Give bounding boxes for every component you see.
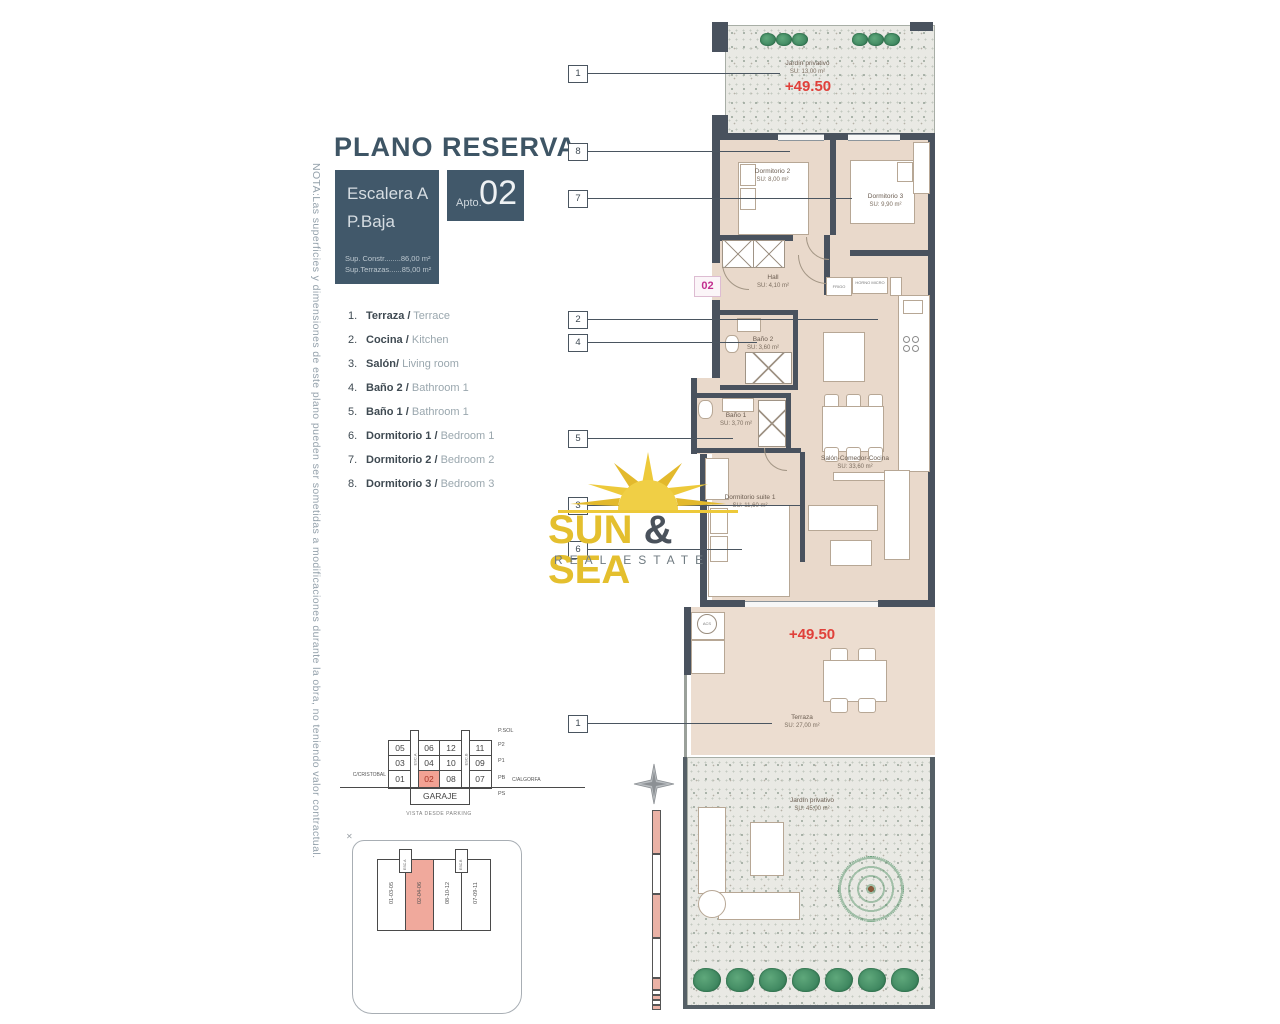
wall bbox=[683, 757, 687, 1009]
wall bbox=[712, 300, 720, 378]
bush bbox=[792, 968, 820, 992]
hob-burner bbox=[903, 336, 910, 343]
garden-table bbox=[750, 822, 784, 876]
bush bbox=[868, 33, 884, 46]
boundary bbox=[684, 675, 687, 757]
callout-leader-line bbox=[586, 73, 780, 74]
terrace-table bbox=[823, 660, 887, 702]
wall bbox=[700, 600, 745, 607]
legend-item: 2.Cocina / Kitchen bbox=[348, 334, 494, 358]
closet bbox=[753, 240, 785, 268]
hob-burner bbox=[912, 336, 919, 343]
kitchen-sink bbox=[903, 300, 923, 314]
apto-number: 02 bbox=[479, 174, 517, 213]
oven-micro: HORNO MICRO bbox=[852, 277, 888, 294]
window bbox=[848, 134, 900, 141]
wall bbox=[691, 378, 697, 454]
garden-sofa bbox=[718, 892, 800, 920]
floor-label-PS: PS bbox=[498, 791, 505, 797]
tv-unit bbox=[833, 472, 889, 481]
callout-leader-line bbox=[586, 723, 772, 724]
bath1-shower bbox=[758, 400, 786, 447]
hob-burner bbox=[912, 345, 919, 352]
scale-segment bbox=[652, 854, 661, 894]
scale-segment bbox=[652, 894, 661, 938]
scale-segment bbox=[652, 1005, 661, 1010]
chair bbox=[830, 698, 848, 713]
garden-sofa bbox=[698, 807, 726, 894]
callout-4: 4 bbox=[568, 334, 588, 352]
street-line bbox=[340, 787, 585, 788]
bush bbox=[858, 968, 886, 992]
escalera-label: Escalera A bbox=[347, 184, 439, 204]
bath1-sink bbox=[722, 398, 754, 412]
callout-leader-line bbox=[586, 438, 733, 439]
room-label-dorm3: Dormitorio 3 SU: 9,90 m² bbox=[848, 193, 923, 210]
wardrobe bbox=[913, 142, 930, 194]
bush bbox=[852, 33, 868, 46]
wall bbox=[800, 452, 805, 562]
pantry bbox=[890, 277, 902, 296]
graphic-scale-bar bbox=[652, 810, 661, 1010]
bush bbox=[776, 33, 792, 46]
bush bbox=[792, 33, 808, 46]
garage-caption: VISTA DESDE PARKING bbox=[388, 811, 490, 817]
scale-segment bbox=[652, 978, 661, 990]
legend-item: 4.Baño 2 / Bathroom 1 bbox=[348, 382, 494, 406]
legend-item: 5.Baño 1 / Bathroom 1 bbox=[348, 406, 494, 430]
plano-reserva-sheet: NOTA:Las superficies y dimensiones de es… bbox=[0, 0, 1280, 1024]
callout-3: 3 bbox=[568, 497, 588, 515]
window bbox=[778, 134, 824, 141]
wall bbox=[793, 310, 798, 390]
pillow bbox=[710, 508, 728, 534]
wall bbox=[910, 22, 933, 31]
bush bbox=[884, 33, 900, 46]
room-legend: 1.Terraza / Terrace2.Cocina / Kitchen3.S… bbox=[348, 310, 494, 502]
room-label-bano1: Baño 1 SU: 3,70 m² bbox=[714, 412, 758, 429]
planta-label: P.Baja bbox=[347, 212, 439, 232]
callout-leader-line bbox=[586, 342, 757, 343]
callout-2: 2 bbox=[568, 311, 588, 329]
legend-item: 6.Dormitorio 1 / Bedroom 1 bbox=[348, 430, 494, 454]
street-left: C/CRISTOBAL bbox=[340, 772, 386, 779]
laundry-closet bbox=[691, 640, 725, 674]
hob-burner bbox=[903, 345, 910, 352]
page-title: PLANO RESERVA bbox=[334, 132, 577, 163]
tree bbox=[838, 856, 904, 922]
floor-label-PB: PB bbox=[498, 775, 505, 781]
sofa bbox=[808, 505, 878, 531]
room-label-salon: Salón-Comedor-Cocina SU: 33,60 m² bbox=[815, 455, 895, 472]
street-right: C/ALGORFA bbox=[512, 777, 541, 784]
lamp-icon: ✕ bbox=[346, 832, 353, 841]
callout-6: 6 bbox=[568, 541, 588, 559]
wall bbox=[830, 140, 836, 235]
fridge: FRIGO bbox=[826, 277, 852, 296]
callout-8: 8 bbox=[568, 143, 588, 161]
compass-icon bbox=[633, 763, 675, 805]
bush bbox=[726, 968, 754, 992]
callout-1: 1 bbox=[568, 65, 588, 83]
sofa bbox=[884, 470, 910, 560]
garden-round-table bbox=[698, 890, 726, 918]
disclaimer-note: NOTA:Las superficies y dimensiones de es… bbox=[306, 163, 322, 903]
room-label-suite: Dormitorio suite 1 SU: 11,60 m² bbox=[710, 494, 790, 511]
callout-leader-line bbox=[586, 505, 800, 506]
bush bbox=[759, 968, 787, 992]
floor-label-P1: P1 bbox=[498, 758, 505, 764]
scale-segment bbox=[652, 810, 661, 854]
wall bbox=[930, 757, 935, 1009]
pillow bbox=[897, 162, 913, 182]
legend-item: 1.Terraza / Terrace bbox=[348, 310, 494, 334]
sup-constr: Sup. Constr........86,00 m² bbox=[345, 254, 439, 263]
escalera-box: Escalera A P.Baja Sup. Constr........86,… bbox=[335, 170, 439, 284]
callout-5: 5 bbox=[568, 430, 588, 448]
room-label-hall: Hall SU: 4,10 m² bbox=[748, 274, 798, 291]
callout-1: 1 bbox=[568, 715, 588, 733]
coffee-table bbox=[830, 540, 872, 566]
dining-table bbox=[822, 406, 884, 452]
wall bbox=[878, 600, 935, 607]
bath1-toilet bbox=[698, 400, 713, 419]
floor-label-P.SOL: P.SOL bbox=[498, 728, 514, 734]
elevation-terrace: +49.50 bbox=[772, 626, 852, 643]
garage-stair: ESC.B bbox=[461, 730, 470, 789]
room-label-bano2: Baño 2 SU: 3,60 m² bbox=[737, 336, 789, 353]
bush bbox=[693, 968, 721, 992]
pillow bbox=[740, 188, 756, 210]
bush bbox=[760, 33, 776, 46]
chair bbox=[858, 698, 876, 713]
callout-7: 7 bbox=[568, 190, 588, 208]
floor-label-P2: P2 bbox=[498, 742, 505, 748]
wall bbox=[684, 607, 691, 675]
callout-leader-line bbox=[586, 319, 878, 320]
scale-segment bbox=[652, 938, 661, 978]
site-stair: ESC.A bbox=[399, 849, 412, 873]
room-label-terraza: Terraza SU: 27,00 m² bbox=[772, 714, 832, 731]
apto-label: Apto. bbox=[456, 197, 482, 209]
unit-entry-marker: 02 bbox=[694, 276, 721, 297]
callout-leader-line bbox=[586, 549, 742, 550]
garaje-cell: GARAJE bbox=[410, 788, 470, 805]
wall bbox=[712, 22, 728, 52]
kitchen-island bbox=[823, 332, 865, 382]
bath2-shower bbox=[745, 352, 792, 384]
apartment-number-box: Apto. 02 bbox=[447, 170, 524, 221]
wall bbox=[850, 250, 935, 256]
callout-leader-line bbox=[586, 151, 790, 152]
bath2-sink bbox=[737, 318, 761, 332]
wall bbox=[683, 1005, 935, 1009]
site-stair: ESC.B bbox=[455, 849, 468, 873]
legend-item: 3.Salón/ Living room bbox=[348, 358, 494, 382]
room-label-jardin-top: Jardín privativo SU: 13,00 m² bbox=[760, 60, 855, 77]
bush bbox=[825, 968, 853, 992]
wall bbox=[786, 393, 791, 453]
bush bbox=[891, 968, 919, 992]
garage-stair: ESC.A bbox=[410, 730, 419, 789]
site-plan: 01-03-0502-04-0608-10-1207-09-11ESC.AESC… bbox=[352, 840, 522, 1014]
legend-item: 7.Dormitorio 2 / Bedroom 2 bbox=[348, 454, 494, 478]
wall bbox=[720, 310, 798, 315]
acs-tank: ACS bbox=[697, 614, 717, 634]
room-label-dorm2: Dormitorio 2 SU: 8,00 m² bbox=[735, 168, 810, 185]
callout-leader-line bbox=[586, 198, 852, 199]
legend-item: 8.Dormitorio 3 / Bedroom 3 bbox=[348, 478, 494, 502]
kitchen-counter bbox=[898, 295, 930, 472]
elevation-top: +49.50 bbox=[768, 78, 848, 95]
garage-diagram: 050612110304100901020807ESC.AESC.BGARAJE… bbox=[340, 725, 600, 825]
room-label-jardin-bottom: Jardín privativo SU: 45,00 m² bbox=[772, 797, 852, 814]
wall bbox=[720, 385, 798, 390]
sup-terrazas: Sup.Terrazas......85,00 m² bbox=[345, 265, 439, 274]
